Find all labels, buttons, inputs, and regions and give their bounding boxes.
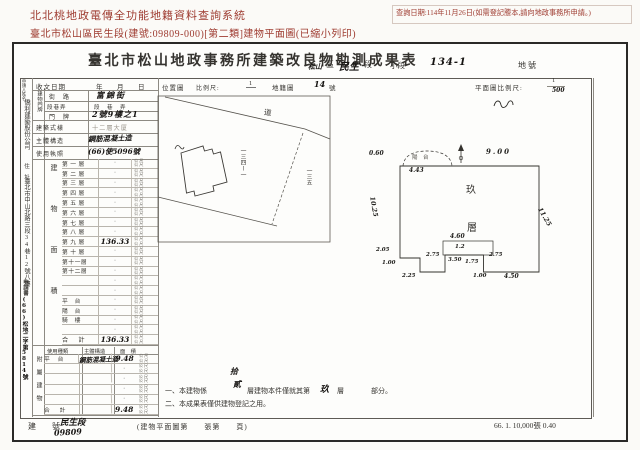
floor-area-value: ·	[99, 188, 132, 197]
floor-area-total-unit: 公尺公尺	[132, 335, 154, 344]
floor-area-value: ·	[99, 257, 132, 266]
annex-structure	[80, 394, 112, 404]
note1-suffix: 部分。	[371, 386, 392, 396]
floor-area-unit: 公尺公尺	[132, 286, 154, 295]
dim-4-50: 4.50	[504, 273, 519, 280]
note1-floor-word: 層	[337, 386, 344, 396]
note1-hw-two: 貳	[233, 379, 241, 390]
floor-label: 第 六 層	[62, 208, 99, 217]
floor-area-unit: 公尺公尺	[132, 198, 154, 207]
note1-hw-ten: 拾	[230, 366, 238, 377]
floor-area-unit: 公尺公尺	[132, 276, 154, 285]
floor-label: 第十二層	[62, 267, 99, 276]
print-run-note: 66. 1. 10,000張 0.40	[494, 420, 556, 431]
page-note: (建物平面圖第 張第 頁)	[137, 422, 248, 432]
floor-area-value: ·	[99, 325, 132, 334]
annex-total-structure	[80, 404, 112, 414]
dim-1-00-left: 1.00	[382, 260, 395, 266]
dim-4-60: 4.60	[450, 233, 465, 240]
lr-query-system-page: 北北桃地政電傳全功能地籍資料查詢系統 查詢日期:114年11月26日(如需登記謄…	[0, 0, 640, 450]
system-title: 北北桃地政電傳全功能地籍資料查詢系統	[30, 7, 246, 23]
floor-area-value: ·	[99, 247, 132, 256]
floor-area-value: 136.33	[99, 237, 132, 246]
floor-area-value: ·	[99, 286, 132, 295]
applicant-address: 臺北市中山北路三段34巷12號八樓	[22, 178, 31, 278]
land-section-label: 段	[364, 59, 372, 70]
scale-label: 比例尺:	[196, 83, 220, 92]
dim-3-50: 3.50	[448, 257, 461, 263]
annex-total-value: 9.48	[112, 405, 137, 414]
sec-lane-label: 段巷弄	[47, 103, 67, 111]
floor-area-unit: 公尺公尺	[132, 159, 154, 168]
dim-1-75: 1.75	[465, 259, 478, 265]
cadastral-map-unit: 號	[329, 82, 337, 92]
floor-area-unit: 公尺公尺	[132, 296, 154, 305]
applicant-address-label: 住 址	[22, 163, 30, 177]
query-date-box: 查詢日期:114年11月26日(如需登記謄本,請向地政事務所申請。)	[392, 5, 632, 24]
annex-structure	[80, 374, 112, 384]
dim-2-05: 2.05	[376, 247, 389, 253]
floor-label: 第 十 層	[62, 247, 99, 256]
floor-area-value: ·	[99, 306, 132, 315]
floor-area-value: ·	[99, 276, 132, 285]
street-label: 街 路	[49, 92, 70, 101]
floor-area-value: ·	[99, 296, 132, 305]
note1-hw-nine: 玖	[320, 382, 329, 395]
cadastral-map-no: 14	[314, 79, 325, 89]
floor-area-value: ·	[99, 208, 132, 217]
floor-label: 第 一 層	[62, 159, 99, 168]
road-label: 道	[263, 107, 272, 119]
structure-value: 鋼筋混凝土造	[88, 133, 132, 145]
annex-unit: 公尺公尺	[137, 395, 158, 404]
cadastral-map-label: 地籍圖	[272, 82, 295, 92]
plan-scale-num: 1	[552, 77, 556, 84]
floor-label: 第 四 層	[62, 188, 99, 197]
parcel-number-label: 一三四ー一	[238, 148, 247, 188]
annex-area: ·	[112, 374, 137, 383]
floor-number-char: 玖	[466, 181, 476, 196]
floor-label: 陽 台	[62, 306, 99, 315]
annex-total-row: 合 計 9.48 公尺公尺	[44, 405, 158, 415]
license-label: 使用執照	[36, 149, 64, 158]
dim-9-00: 9.00	[486, 147, 511, 156]
plan-scale-den: 500	[552, 87, 565, 94]
rule-v-table-right	[158, 78, 159, 417]
dim-2-75-left: 2.75	[426, 252, 439, 258]
floor-area-value: ·	[99, 227, 132, 236]
floor-area-unit: 公尺公尺	[132, 306, 154, 315]
building-no-hw: 09809	[54, 426, 82, 437]
style-label: 建築式樣	[36, 123, 64, 132]
door-no-value: 2號9樓之1	[92, 109, 139, 120]
floor-area-unit: 公尺公尺	[132, 267, 154, 276]
annex-use: 平 台	[44, 354, 79, 363]
floor-area-value: ·	[99, 198, 132, 207]
annex-unit: 公尺公尺	[137, 364, 158, 373]
floor-word-char: 層	[467, 219, 477, 234]
annex-unit: 公尺公尺	[137, 385, 158, 394]
land-district-hw: 松山	[308, 62, 322, 72]
annex-use	[44, 364, 80, 373]
dim-1-00-bottom: 1.00	[473, 273, 486, 279]
rule-h-annex-bottom	[32, 415, 158, 416]
receive-date-label: 收文日期	[36, 81, 66, 91]
annex-use	[44, 385, 80, 394]
annex-structure: 鋼筋混凝土造	[79, 353, 112, 363]
floor-label: 第 八 層	[62, 227, 99, 236]
license-value: (66)使5096號	[88, 147, 140, 157]
floor-label	[62, 286, 99, 295]
style-value: 十二層大厦	[92, 123, 128, 132]
document-subtitle: 臺北市松山區民生段(建號:09809-000)[第二類]建物平面圖(已縮小列印)	[30, 25, 356, 40]
floor-area-unit: 公尺公尺	[132, 237, 154, 246]
floor-label: 第 二 層	[62, 169, 99, 178]
annex-area: ·	[112, 385, 137, 394]
floor-area-value: ·	[99, 316, 132, 325]
dim-0-60: 0.60	[369, 150, 384, 157]
balcony-label: 陽 台	[412, 153, 429, 161]
land-district-label: 區	[326, 59, 334, 70]
annex-use	[44, 374, 80, 383]
door-plate-side-label: 建物門牌	[35, 91, 43, 119]
annex-area: ·	[112, 395, 137, 404]
floor-area-value: ·	[99, 218, 132, 227]
rule-v-applicant	[32, 78, 33, 417]
query-date: 查詢日期:114年11月26日(如需登記謄本,請向地政事務所申請。)	[393, 8, 631, 18]
floor-label: 騎 樓	[62, 316, 99, 325]
scale-numerator: 1	[246, 80, 256, 88]
note2: 二、本成果表僅供建物登記之用。	[165, 399, 270, 409]
annex-unit: 公尺公尺	[137, 375, 158, 384]
annex-total-label: 合 計	[44, 405, 80, 414]
annex-side-label: 附屬建物	[34, 356, 43, 412]
area-table-side-label: 建物面積	[49, 164, 59, 336]
rule-h-2	[44, 101, 158, 102]
land-subsection-label: 小段	[390, 60, 405, 71]
neighbor-parcel-label: 一三五	[304, 168, 313, 196]
annex-use	[44, 395, 80, 404]
floor-label	[62, 325, 99, 334]
floor-area-unit: 公尺公尺	[132, 179, 154, 188]
floor-area-unit: 公尺公尺	[132, 315, 154, 324]
floor-label: 第十一層	[62, 257, 99, 266]
floor-area-unit: 公尺公尺	[132, 208, 154, 217]
annex-area: ·	[112, 364, 137, 373]
floor-area-value: ·	[99, 159, 132, 168]
annex-structure	[80, 384, 112, 394]
floor-area-unit: 公尺公尺	[132, 227, 154, 236]
door-no-label: 門 牌	[49, 112, 70, 121]
floor-label: 第 五 層	[62, 198, 99, 207]
dim-2-25: 2.25	[402, 273, 415, 279]
floor-label: 第 七 層	[62, 218, 99, 227]
dim-4-43: 4.43	[409, 167, 424, 174]
floor-area-unit: 公尺公尺	[132, 257, 154, 266]
floor-area-table: 第 一 層 · 公尺公尺 第 二 層 · 公尺公尺 第 三 層 · 公尺公尺 第…	[62, 159, 158, 335]
applicant-name-label: 申請人姓名	[21, 79, 27, 97]
floor-area-value: ·	[99, 267, 132, 276]
street-value: 富錦街	[96, 90, 126, 101]
floor-label: 平 台	[62, 296, 99, 305]
applicant-name: 僑利建築股份公司	[22, 99, 31, 163]
dim-2-75-right: 2.75	[489, 252, 502, 258]
note1-prefix: 一、本建物係	[165, 386, 207, 396]
form-right-double-rule	[593, 78, 594, 417]
application-doc-no: (66)松地二字第5814號	[20, 297, 29, 363]
floor-area-total-row: 合 計 136.33 公尺公尺	[62, 335, 158, 345]
floor-area-unit: 公尺公尺	[132, 188, 154, 197]
land-section-hw: 民生	[339, 58, 359, 73]
floor-label: 第 九 層	[62, 237, 99, 246]
floor-area-unit: 公尺公尺	[132, 218, 154, 227]
annex-total-unit: 公尺公尺	[137, 405, 158, 414]
annex-table: 平 台 鋼筋混凝土造 9.48 公尺公尺 · 公尺公尺 · 公尺公尺	[44, 354, 158, 405]
floor-area-value: ·	[99, 169, 132, 178]
land-lot-hw: 134-1	[430, 57, 467, 68]
floor-area-unit: 公尺公尺	[132, 325, 154, 334]
floor-area-total-value: 136.33	[99, 335, 132, 344]
land-lot-label: 地號	[518, 60, 538, 71]
application-doc-label: 申請書	[21, 279, 29, 297]
dim-1-2: 1.2	[455, 244, 465, 250]
structure-label: 主體構造	[36, 136, 64, 145]
floor-area-unit: 公尺公尺	[132, 169, 154, 178]
floor-area-unit: 公尺公尺	[132, 247, 154, 256]
plan-scale-label: 平面圖比例尺:	[475, 82, 523, 92]
floor-label	[62, 276, 99, 285]
floor-area-total-label: 合 計	[62, 335, 99, 344]
location-map-label: 位置圖	[162, 82, 185, 92]
floor-label: 第 三 層	[62, 179, 99, 188]
annex-structure	[80, 364, 112, 374]
floor-area-value: ·	[99, 179, 132, 188]
note1-middle: 層建物本件僅就其第	[247, 386, 310, 396]
annex-unit: 公尺公尺	[137, 354, 158, 363]
